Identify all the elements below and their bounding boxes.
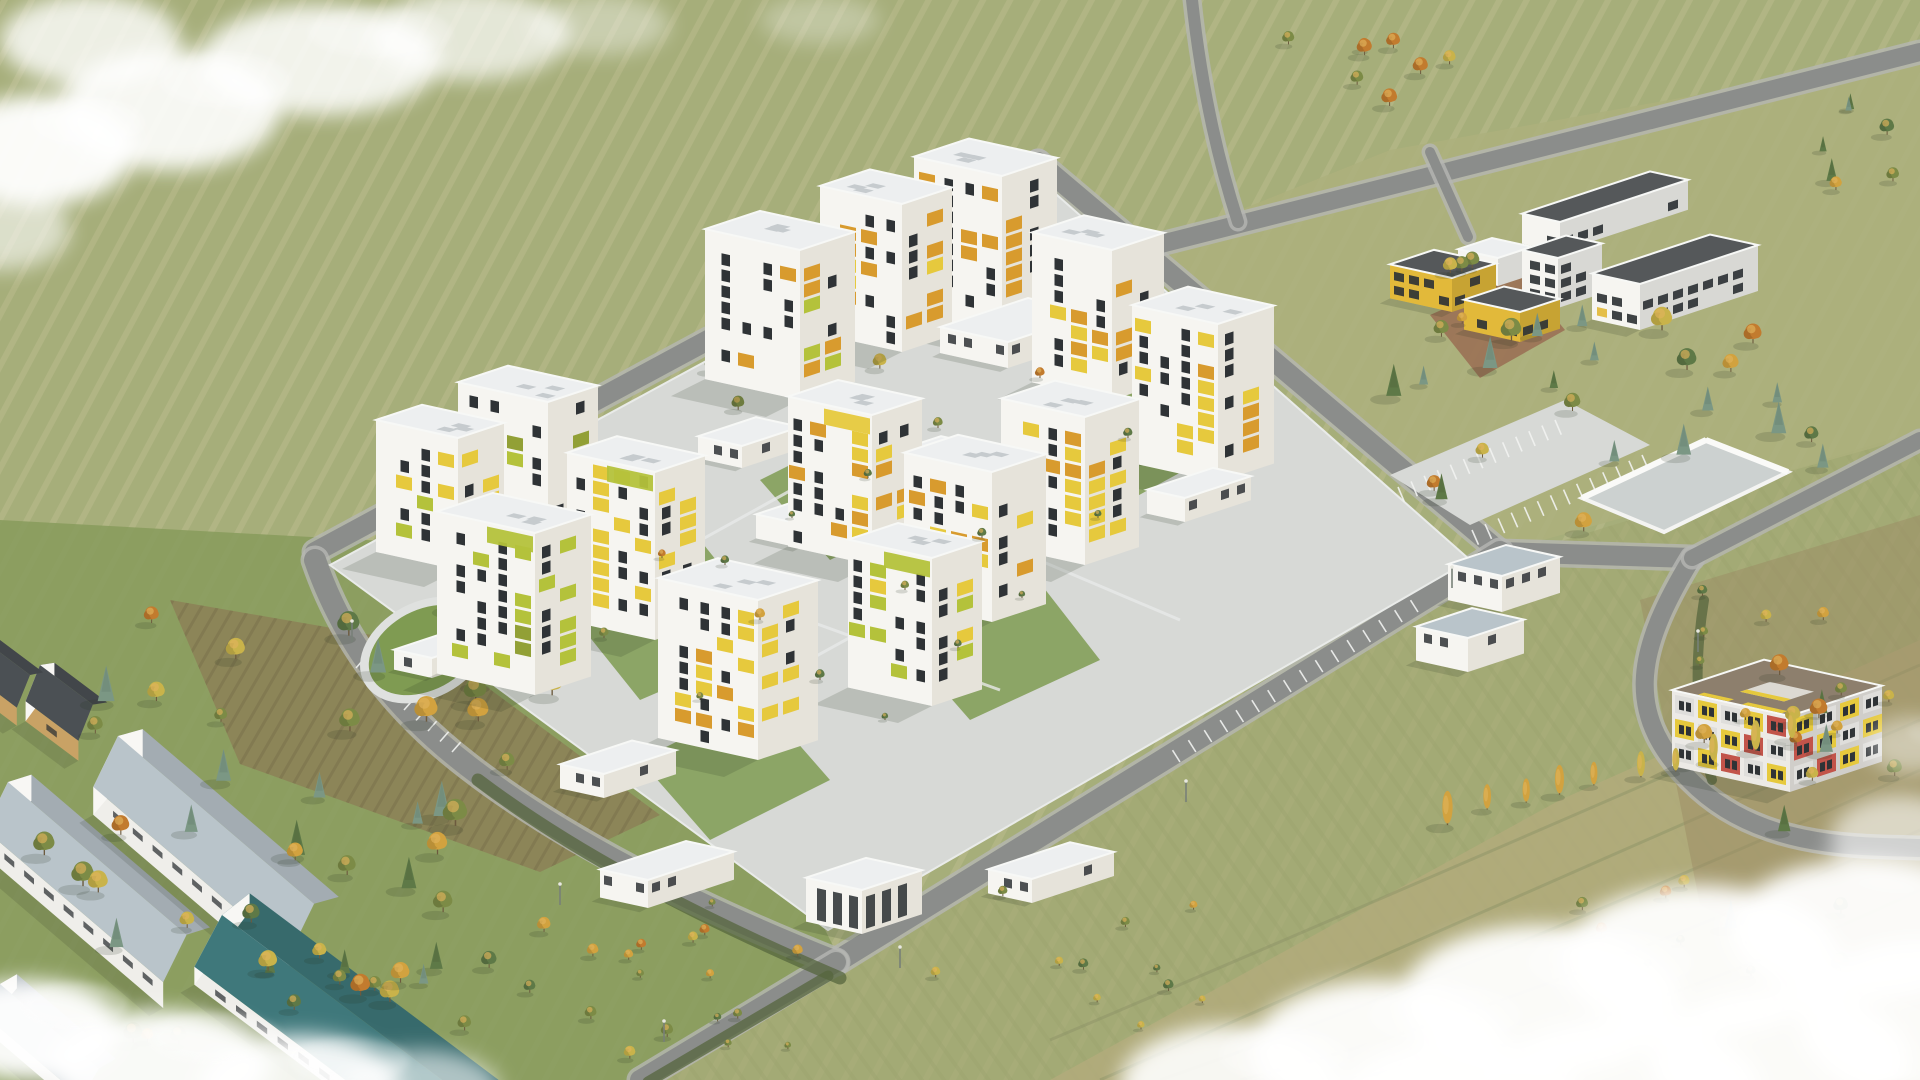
tree-shadow: [455, 720, 485, 730]
tree-shadow: [415, 853, 444, 863]
crown-light: [315, 944, 322, 951]
crown-light: [262, 952, 271, 961]
crown-light: [1567, 394, 1575, 402]
tree-shadow: [450, 1030, 469, 1036]
tree-shadow: [1733, 342, 1759, 351]
crown-light: [217, 709, 223, 715]
window: [640, 571, 649, 584]
tree-shadow: [21, 854, 51, 864]
window: [499, 621, 508, 634]
tree-shadow: [1810, 619, 1827, 625]
crown-light: [370, 977, 376, 983]
tree-shadow: [1665, 369, 1693, 378]
cloud-blob: [149, 1013, 281, 1063]
window: [794, 482, 803, 495]
window: [987, 267, 996, 280]
tree-shadow: [325, 984, 344, 990]
tree-shadow: [1565, 530, 1589, 538]
tree-shadow: [809, 679, 823, 684]
crown-light: [1505, 320, 1515, 330]
lamp-head: [1184, 779, 1188, 783]
crown-light: [115, 817, 123, 825]
window: [1182, 360, 1191, 373]
window: [966, 294, 975, 307]
window: [914, 507, 923, 520]
window: [866, 294, 875, 307]
window: [1686, 750, 1691, 760]
window: [1049, 523, 1058, 536]
crown-light: [1467, 253, 1474, 260]
window: [854, 591, 863, 604]
tree-shadow: [360, 990, 379, 996]
window: [1748, 764, 1753, 774]
tree-shadow: [1759, 674, 1786, 683]
cloud-blob: [1367, 984, 1523, 1047]
crown-light: [1788, 715, 1793, 730]
tree-shadow: [1796, 441, 1816, 448]
crown-light: [1681, 350, 1690, 359]
crown-light: [1080, 959, 1085, 964]
window: [1140, 335, 1149, 348]
tree-shadow: [215, 658, 242, 667]
window: [1725, 711, 1730, 721]
tree-shadow: [728, 1018, 741, 1022]
crown-light: [1191, 901, 1195, 905]
tree-shadow: [1520, 335, 1542, 342]
crown-light: [229, 639, 238, 648]
window: [914, 475, 923, 488]
window: [401, 460, 410, 473]
crown-light: [1139, 1022, 1143, 1026]
window: [815, 487, 824, 500]
crown-light: [1416, 58, 1423, 65]
window: [576, 773, 584, 784]
tree-shadow: [1696, 761, 1719, 769]
window: [1679, 749, 1684, 759]
window: [935, 496, 944, 509]
crown-light: [1882, 120, 1889, 127]
window: [478, 601, 487, 614]
window: [1049, 427, 1058, 440]
window: [764, 278, 773, 291]
tree-shadow: [1580, 360, 1598, 366]
window: [636, 882, 644, 893]
tree-shadow: [682, 942, 696, 947]
crown-light: [437, 892, 446, 901]
tree-shadow: [80, 700, 114, 711]
aerial-render: [0, 0, 1920, 1080]
tree-shadow: [1599, 460, 1619, 467]
window: [457, 580, 466, 593]
crown-light: [786, 1042, 789, 1045]
tree-shadow: [1451, 323, 1466, 328]
crown-light: [290, 844, 298, 852]
tree-shadow: [1690, 666, 1703, 670]
lamp-head: [1450, 565, 1454, 569]
crown-light: [1832, 177, 1838, 183]
tree-shadow: [380, 981, 407, 990]
tree-shadow: [277, 859, 300, 867]
window: [730, 448, 738, 459]
window: [722, 718, 731, 731]
crown-light: [343, 710, 353, 720]
window: [640, 523, 649, 536]
window: [794, 498, 803, 511]
window: [917, 669, 926, 682]
tree-shadow: [1370, 395, 1400, 405]
tree-shadow: [200, 779, 230, 789]
window: [422, 464, 431, 477]
tree-shadow: [1754, 621, 1770, 626]
crown-light: [526, 981, 532, 987]
window: [701, 698, 710, 711]
crown-light: [1556, 769, 1561, 785]
window: [422, 480, 431, 493]
window: [1843, 730, 1848, 741]
tree-shadow: [1661, 453, 1690, 463]
window: [422, 512, 431, 525]
tree-shadow: [1410, 384, 1428, 390]
window: [1490, 578, 1498, 589]
window: [499, 605, 508, 618]
window: [794, 530, 803, 543]
crown-light: [1833, 721, 1839, 727]
tree-shadow: [618, 959, 631, 963]
crown-light: [431, 834, 441, 844]
window: [604, 875, 612, 886]
tree-shadow: [401, 720, 434, 731]
tree-shadow: [1133, 1029, 1144, 1033]
tree-shadow: [1879, 180, 1897, 186]
tree-shadow: [1072, 969, 1086, 974]
window: [1755, 765, 1760, 775]
window: [722, 253, 731, 266]
window: [499, 589, 508, 602]
window: [1827, 711, 1832, 722]
window: [1458, 571, 1466, 582]
window: [1804, 743, 1809, 754]
tree-shadow: [422, 911, 450, 920]
cloud-blob: [21, 983, 129, 1028]
tree-shadow: [1685, 742, 1709, 750]
tree-shadow: [1089, 1002, 1100, 1006]
tree-shadow: [1877, 701, 1893, 706]
tree-shadow: [715, 564, 727, 568]
tree-shadow: [1569, 909, 1586, 915]
window: [619, 550, 628, 563]
lamp-head: [1696, 629, 1700, 633]
crown-light: [92, 872, 101, 881]
tree-shadow: [692, 700, 702, 703]
crown-light: [354, 975, 363, 984]
crown-light: [1591, 765, 1595, 778]
window: [722, 301, 731, 314]
window: [619, 598, 628, 611]
lamp-head: [350, 619, 354, 623]
window: [987, 283, 996, 296]
window: [1725, 735, 1730, 745]
window: [640, 507, 649, 520]
window: [1778, 770, 1783, 780]
window: [964, 337, 972, 348]
window: [1850, 728, 1855, 739]
window: [1161, 356, 1170, 369]
crown-light: [1808, 768, 1814, 774]
tree-shadow: [617, 1058, 633, 1063]
tree-shadow: [401, 823, 422, 830]
tree-shadow: [207, 721, 225, 727]
tree-shadow: [1871, 134, 1892, 141]
crown-light: [1752, 724, 1757, 741]
crown-light: [1384, 90, 1392, 98]
window: [592, 776, 600, 787]
crown-light: [1445, 51, 1451, 57]
window: [935, 512, 944, 525]
tree-shadow: [1015, 598, 1024, 601]
window: [794, 434, 803, 447]
tree-shadow: [1185, 909, 1196, 913]
window: [722, 317, 731, 330]
window: [896, 616, 905, 629]
window: [1679, 701, 1684, 711]
crown-light: [1200, 996, 1203, 999]
tree-shadow: [232, 922, 257, 930]
crown-light: [589, 944, 594, 949]
crown-light: [726, 1040, 729, 1043]
tree-shadow: [137, 700, 162, 708]
crown-light: [710, 899, 713, 902]
tree-shadow: [171, 831, 197, 840]
tree-shadow: [1418, 490, 1438, 497]
crown-light: [735, 1009, 739, 1013]
tree-shadow: [1765, 830, 1790, 838]
window: [1182, 328, 1191, 341]
window: [1850, 704, 1855, 715]
crown-light: [1747, 325, 1756, 334]
window: [887, 331, 896, 344]
tree-shadow: [327, 874, 352, 882]
glass-door: [898, 883, 907, 918]
lamp-head: [898, 945, 902, 949]
crown-light: [147, 608, 154, 615]
crown-light: [1165, 980, 1170, 985]
window: [701, 602, 710, 615]
window: [743, 322, 752, 335]
window: [1055, 290, 1064, 303]
crown-light: [1701, 627, 1705, 631]
tree-shadow: [247, 970, 274, 979]
tree-shadow: [304, 958, 324, 965]
window: [794, 450, 803, 463]
window: [1850, 752, 1855, 763]
crown-light: [865, 470, 869, 474]
tree-shadow: [1343, 84, 1361, 90]
tree-shadow: [878, 720, 887, 723]
crown-light: [484, 952, 491, 959]
tree-shadow: [580, 956, 596, 961]
tree-shadow: [1878, 775, 1900, 782]
tree-shadow: [632, 977, 643, 981]
window: [722, 285, 731, 298]
window: [1725, 759, 1730, 769]
crown-light: [1429, 476, 1436, 483]
window: [1702, 706, 1707, 716]
crown-light: [722, 556, 726, 560]
crown-light: [1697, 657, 1701, 661]
tree-shadow: [1425, 336, 1447, 343]
window: [1771, 721, 1776, 731]
window: [722, 622, 731, 635]
window: [401, 508, 410, 521]
tree-shadow: [653, 558, 664, 562]
window: [404, 657, 412, 668]
window: [866, 214, 875, 227]
window: [1843, 754, 1848, 765]
crown-light: [638, 970, 642, 974]
tree-shadow: [1691, 595, 1705, 600]
crown-light: [76, 863, 87, 874]
window: [1843, 706, 1848, 717]
window: [917, 621, 926, 634]
crown-light: [1655, 308, 1665, 318]
crown-light: [1459, 313, 1464, 318]
crown-light: [447, 801, 459, 813]
tree-shadow: [324, 634, 356, 645]
crown-light: [1813, 700, 1821, 708]
cloud-blob: [31, 98, 145, 148]
cloud-blob: [1219, 1028, 1351, 1080]
glass-door: [817, 888, 826, 922]
crown-light: [246, 905, 254, 913]
tree-shadow: [1404, 73, 1426, 80]
window: [533, 425, 542, 438]
window: [714, 445, 722, 456]
window: [422, 448, 431, 461]
window: [815, 439, 824, 452]
window: [533, 473, 542, 486]
tree-shadow: [472, 967, 494, 974]
window: [499, 557, 508, 570]
crown-light: [182, 913, 189, 920]
tree-shadow: [701, 978, 713, 982]
window: [948, 334, 956, 345]
window: [1049, 443, 1058, 456]
window: [1161, 372, 1170, 385]
crown-light: [690, 932, 695, 937]
tree-shadow: [1115, 926, 1128, 930]
tree-shadow: [1839, 110, 1852, 114]
window: [577, 477, 586, 490]
crown-light: [715, 1014, 719, 1018]
crown-light: [290, 995, 297, 1002]
tree-shadow: [1805, 751, 1832, 760]
crown-light: [1807, 427, 1814, 434]
crown-light: [1673, 751, 1677, 764]
tree-shadow: [78, 732, 100, 739]
crown-light: [540, 918, 546, 924]
crown-light: [1638, 755, 1642, 769]
tree-shadow: [339, 994, 367, 1003]
window: [470, 395, 479, 408]
crown-light: [638, 939, 643, 944]
crown-light: [707, 970, 711, 974]
window: [1748, 716, 1753, 726]
tree-shadow: [859, 477, 871, 481]
crown-light: [1819, 608, 1825, 614]
window: [1049, 507, 1058, 520]
tree-shadow: [578, 1018, 595, 1024]
tree-shadow: [1157, 990, 1172, 995]
tree-shadow: [1822, 189, 1840, 195]
tree-shadow: [517, 992, 534, 998]
window: [966, 182, 975, 195]
tree-shadow: [992, 896, 1006, 901]
window: [996, 344, 1004, 355]
tree-shadow: [327, 730, 356, 740]
tree-shadow: [705, 906, 715, 909]
crown-light: [698, 693, 701, 696]
tree-shadow: [1638, 329, 1668, 339]
window: [1709, 707, 1714, 717]
window: [722, 670, 731, 683]
window: [619, 566, 628, 579]
window: [887, 251, 896, 264]
glass-door: [833, 892, 842, 926]
window: [956, 500, 965, 513]
crown-light: [626, 1047, 631, 1052]
crown-light: [90, 717, 97, 724]
crown-light: [902, 581, 906, 585]
tree-shadow: [490, 769, 512, 776]
crown-light: [1889, 168, 1895, 174]
crown-light: [1680, 876, 1685, 881]
window: [533, 457, 542, 470]
glass-door: [882, 888, 891, 923]
aerial-render-viewport: [0, 0, 1920, 1080]
window: [619, 486, 628, 499]
tree-shadow: [1755, 432, 1785, 442]
window: [764, 262, 773, 275]
crown-light: [1020, 591, 1023, 594]
window: [815, 503, 824, 516]
crown-light: [1478, 444, 1484, 450]
tree-shadow: [135, 622, 156, 629]
tree-shadow: [786, 956, 801, 961]
glass-door: [866, 894, 875, 929]
tree-shadow: [1661, 771, 1680, 777]
tree-shadow: [748, 619, 763, 624]
crown-light: [794, 945, 799, 950]
crown-light: [1037, 368, 1042, 373]
tree-shadow: [1378, 47, 1398, 54]
window: [640, 603, 649, 616]
crown-light: [394, 963, 403, 972]
window: [896, 648, 905, 661]
cloud-blob: [159, 53, 291, 107]
tree-shadow: [1275, 44, 1292, 50]
tree-shadow: [720, 1047, 730, 1050]
crown-light: [1484, 788, 1488, 802]
tree-shadow: [95, 946, 123, 955]
tree-shadow: [1799, 717, 1824, 725]
crown-light: [151, 683, 159, 691]
crown-light: [659, 550, 663, 554]
window: [1097, 315, 1106, 328]
window: [1771, 769, 1776, 779]
tree-shadow: [1828, 695, 1845, 701]
tree-shadow: [1736, 750, 1761, 758]
window: [1055, 258, 1064, 271]
